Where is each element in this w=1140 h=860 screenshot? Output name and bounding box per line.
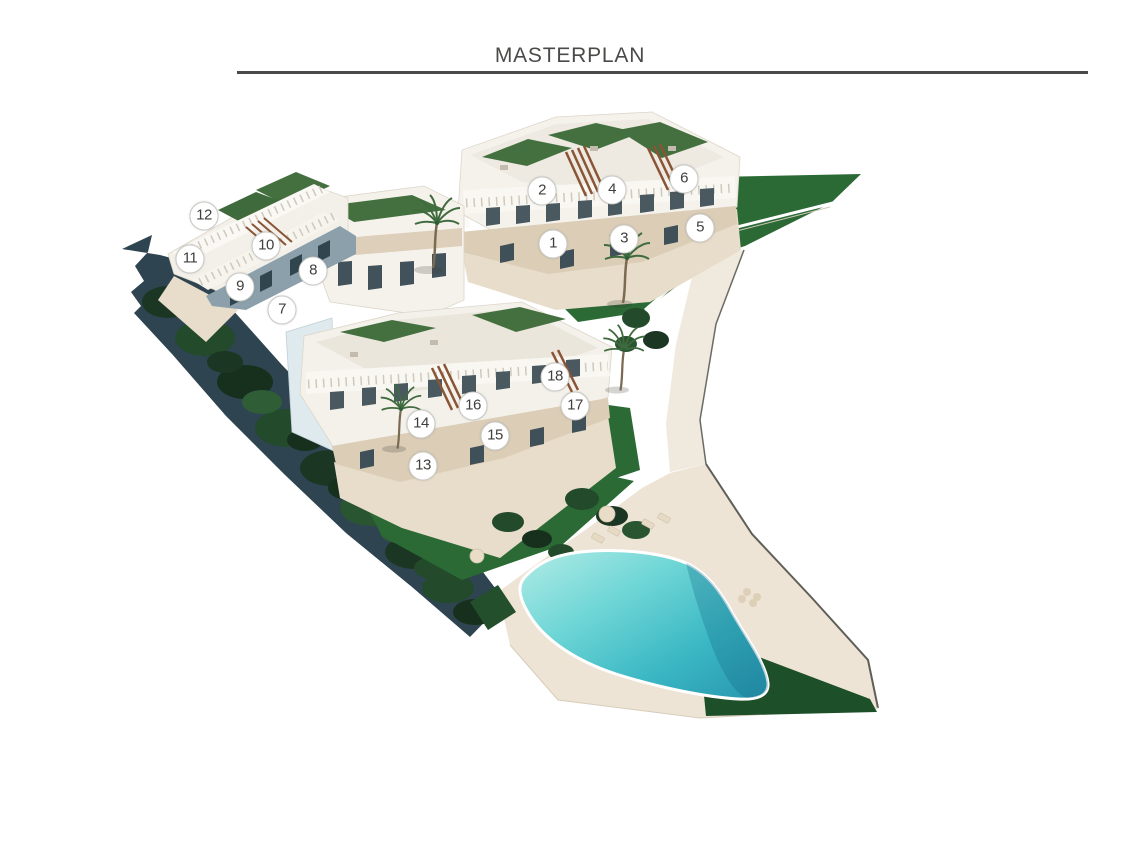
parasol <box>599 506 615 522</box>
building-block-left <box>168 172 464 316</box>
site-plan-illustration <box>0 0 1140 860</box>
masterplan-page: MASTERPLAN <box>0 0 1140 860</box>
parasol <box>470 549 484 563</box>
